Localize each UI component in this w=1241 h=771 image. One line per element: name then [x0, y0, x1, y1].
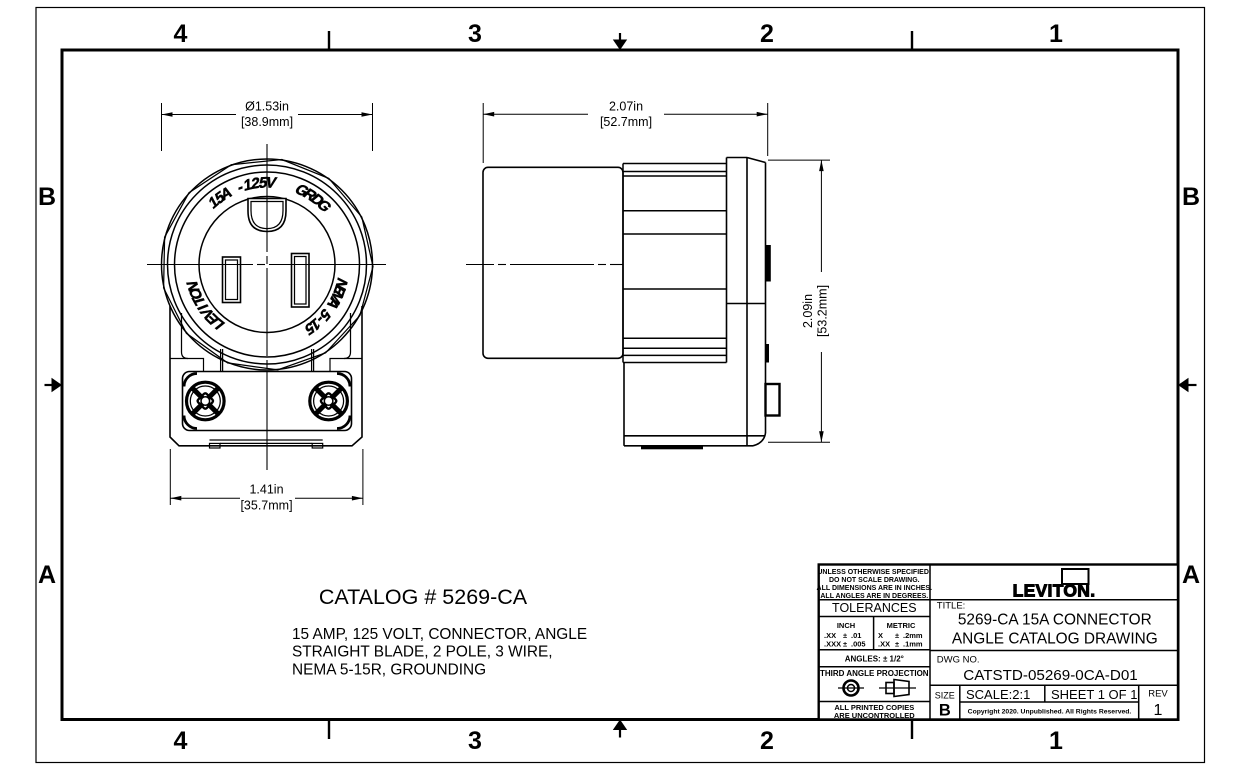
svg-text:2.07in: 2.07in — [609, 100, 643, 114]
svg-text:[38.9mm]: [38.9mm] — [241, 115, 293, 129]
svg-text:TOLERANCES: TOLERANCES — [832, 601, 917, 615]
svg-text:15 AMP, 125 VOLT, CONNECTOR, A: 15 AMP, 125 VOLT, CONNECTOR, ANGLE — [292, 626, 587, 643]
svg-text:DWG NO.: DWG NO. — [937, 655, 980, 666]
svg-text:STRAIGHT BLADE, 2 POLE, 3 WIRE: STRAIGHT BLADE, 2 POLE, 3 WIRE, — [292, 644, 553, 661]
svg-text:1: 1 — [1154, 702, 1163, 719]
svg-text:1.41in: 1.41in — [249, 483, 283, 497]
svg-text:CATALOG # 5269-CA: CATALOG # 5269-CA — [319, 585, 528, 609]
svg-text:[53.2mm]: [53.2mm] — [816, 285, 830, 337]
svg-text:.XX: .XX — [878, 640, 890, 649]
svg-text:2.09in: 2.09in — [801, 294, 815, 328]
svg-text:.XXX: .XXX — [824, 640, 841, 649]
svg-text:ANGLE CATALOG DRAWING: ANGLE CATALOG DRAWING — [952, 631, 1158, 648]
svg-text:±: ± — [843, 640, 847, 649]
svg-text:B: B — [1182, 183, 1200, 211]
svg-text:NEMA 5-15R, GROUNDING: NEMA 5-15R, GROUNDING — [292, 661, 486, 678]
svg-text:±: ± — [895, 640, 899, 649]
svg-text:N: N — [184, 281, 204, 293]
svg-text:Ø1.53in: Ø1.53in — [245, 100, 289, 114]
svg-text:5269-CA 15A CONNECTOR: 5269-CA 15A CONNECTOR — [958, 612, 1152, 629]
svg-text:REV: REV — [1148, 689, 1168, 700]
svg-text:Copyright 2020. Unpublished. A: Copyright 2020. Unpublished. All Rights … — [968, 709, 1132, 716]
svg-text:DO NOT SCALE DRAWING.: DO NOT SCALE DRAWING. — [829, 577, 920, 584]
svg-text:A: A — [38, 561, 56, 589]
svg-text:4: 4 — [174, 20, 188, 48]
svg-text:3: 3 — [468, 727, 482, 755]
svg-text:ANGLES: ± 1/2°: ANGLES: ± 1/2° — [845, 655, 904, 664]
svg-text:TITLE:: TITLE: — [937, 601, 966, 612]
svg-text:SIZE: SIZE — [935, 691, 955, 701]
svg-text:SHEET 1 OF 1: SHEET 1 OF 1 — [1051, 687, 1137, 702]
svg-text:4: 4 — [174, 727, 188, 755]
svg-text:CATSTD-05269-0CA-D01: CATSTD-05269-0CA-D01 — [963, 667, 1137, 684]
svg-text:2: 2 — [760, 20, 774, 48]
svg-text:.005: .005 — [851, 640, 866, 649]
svg-text:1: 1 — [1049, 20, 1063, 48]
svg-text:ALL DIMENSIONS ARE IN INCHES.: ALL DIMENSIONS ARE IN INCHES. — [817, 585, 933, 592]
svg-text:INCH: INCH — [837, 621, 855, 630]
svg-text:2: 2 — [760, 727, 774, 755]
svg-text:LEVITON.: LEVITON. — [1013, 581, 1096, 601]
svg-text:A: A — [1182, 561, 1200, 589]
svg-text:ARE UNCONTROLLED: ARE UNCONTROLLED — [834, 711, 915, 720]
svg-text:THIRD ANGLE PROJECTION: THIRD ANGLE PROJECTION — [820, 669, 929, 678]
svg-text:1: 1 — [1049, 727, 1063, 755]
svg-text:[35.7mm]: [35.7mm] — [240, 499, 292, 513]
svg-text:[52.7mm]: [52.7mm] — [600, 115, 652, 129]
svg-text:SCALE:2:1: SCALE:2:1 — [966, 687, 1030, 702]
svg-text:ALL ANGLES ARE IN DEGREES.: ALL ANGLES ARE IN DEGREES. — [820, 593, 928, 600]
svg-text:UNLESS OTHERWISE SPECIFIED:: UNLESS OTHERWISE SPECIFIED: — [817, 569, 931, 576]
svg-text:B: B — [939, 702, 951, 720]
svg-text:3: 3 — [468, 20, 482, 48]
svg-text:METRIC: METRIC — [887, 621, 916, 630]
svg-text:.1mm: .1mm — [903, 640, 923, 649]
svg-text:B: B — [38, 183, 56, 211]
